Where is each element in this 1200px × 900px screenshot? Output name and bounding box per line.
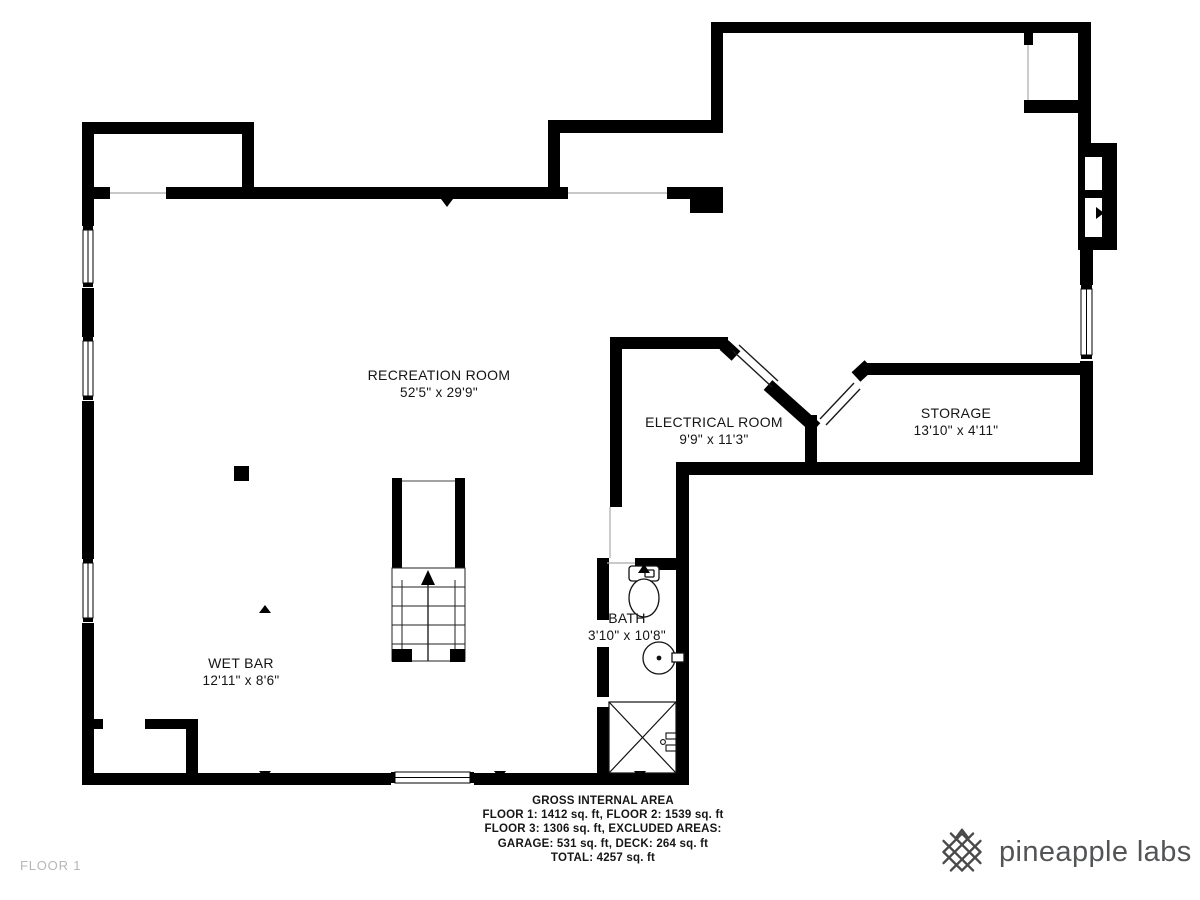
windows <box>80 226 1095 787</box>
room-label-wet-bar: WET BAR 12'11" x 8'6" <box>203 655 280 689</box>
room-label-recreation-room: RECREATION ROOM 52'5" x 29'9" <box>368 367 511 401</box>
wall-corner-block <box>690 199 723 213</box>
wall-top-right-section <box>711 22 1091 33</box>
area-summary-title: GROSS INTERNAL AREA <box>482 794 723 808</box>
room-dims: 13'10" x 4'11" <box>914 422 999 439</box>
room-name: BATH <box>588 610 666 627</box>
wall-top-stub-left <box>82 187 110 199</box>
wall-bath-left-c <box>597 707 609 785</box>
wall-storage-top <box>866 363 1082 375</box>
wall-upper-room-left <box>711 22 723 133</box>
wall-diagonal-cap-left <box>724 345 736 356</box>
gross-internal-area-summary: GROSS INTERNAL AREA FLOOR 1: 1412 sq. ft… <box>482 794 723 865</box>
support-column <box>234 466 249 481</box>
wall-bath-left-b <box>597 647 609 697</box>
door-opening-arrows <box>85 199 1104 779</box>
wall-storage-bottom <box>678 462 1093 475</box>
room-dims: 3'10" x 10'8" <box>588 627 666 644</box>
room-name: WET BAR <box>203 655 280 672</box>
wall-top-main <box>166 187 568 199</box>
area-summary-total: TOTAL: 4257 sq. ft <box>482 851 723 865</box>
room-label-bath: BATH 3'10" x 10'8" <box>588 610 666 644</box>
room-name: RECREATION ROOM <box>368 367 511 384</box>
pineapple-lattice-icon <box>938 826 986 878</box>
door-electrical-leaf-a <box>733 351 772 387</box>
room-name: STORAGE <box>914 405 999 422</box>
room-name: ELECTRICAL ROOM <box>645 414 783 431</box>
wall-right-mid <box>1080 250 1093 287</box>
shower-icon <box>609 702 676 773</box>
room-dims: 9'9" x 11'3" <box>645 431 783 448</box>
floor-number-tag: FLOOR 1 <box>20 858 81 873</box>
wall-bath-right <box>676 462 689 785</box>
stairs-icon <box>392 478 465 662</box>
wall-bumpout-top <box>82 122 254 134</box>
window-icon-bottom <box>391 770 474 787</box>
room-label-storage: STORAGE 13'10" x 4'11" <box>914 405 999 439</box>
right-bump-notch-lower <box>1085 198 1102 237</box>
area-summary-line: FLOOR 1: 1412 sq. ft, FLOOR 2: 1539 sq. … <box>482 808 723 822</box>
room-label-electrical-room: ELECTRICAL ROOM 9'9" x 11'3" <box>645 414 783 448</box>
wall-diagonal-cap-right <box>856 365 869 377</box>
right-bump-notch-upper <box>1085 157 1102 190</box>
floorplan-page: RECREATION ROOM 52'5" x 29'9" ELECTRICAL… <box>0 0 1200 900</box>
window-icon-left-3 <box>80 559 96 623</box>
area-summary-line: FLOOR 3: 1306 sq. ft, EXCLUDED AREAS: <box>482 822 723 836</box>
door-arrow <box>259 605 271 613</box>
wall-closet-stub <box>94 719 103 729</box>
wall-electrical-top <box>610 337 728 349</box>
wall-alcove-bottom <box>1024 100 1091 113</box>
door-electrical-leaf-b <box>739 345 778 381</box>
wall-midbump-top <box>548 120 723 133</box>
brand-logo: pineapple labs <box>938 826 1192 878</box>
door-arrow <box>441 199 453 207</box>
window-icon-left-2 <box>80 337 96 401</box>
wall-closet-right <box>186 719 198 777</box>
room-dims: 12'11" x 8'6" <box>203 672 280 689</box>
room-dims: 52'5" x 29'9" <box>368 384 511 401</box>
window-icon-right <box>1078 285 1095 361</box>
wall-electrical-left <box>610 337 622 507</box>
area-summary-line: GARAGE: 531 sq. ft, DECK: 264 sq. ft <box>482 837 723 851</box>
window-icon-left-1 <box>80 226 96 288</box>
brand-name: pineapple labs <box>999 836 1192 869</box>
wall-right-upper <box>1078 22 1091 143</box>
wall-top-stub-right <box>667 187 723 199</box>
floorplan-drawing <box>0 0 1200 900</box>
wall-alcove-stub <box>1024 33 1033 45</box>
